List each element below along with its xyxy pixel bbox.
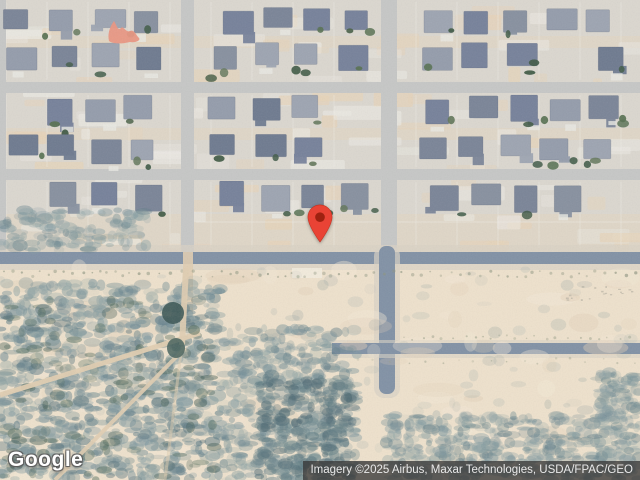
pin-hole-icon (315, 212, 325, 222)
map-viewport[interactable]: Google Imagery ©2025 Airbus, Maxar Techn… (0, 0, 640, 480)
map-pin[interactable] (307, 204, 333, 243)
google-logo[interactable]: Google (8, 448, 83, 472)
pin-body-icon (308, 205, 332, 242)
map-attribution: Imagery ©2025 Airbus, Maxar Technologies… (303, 461, 640, 480)
